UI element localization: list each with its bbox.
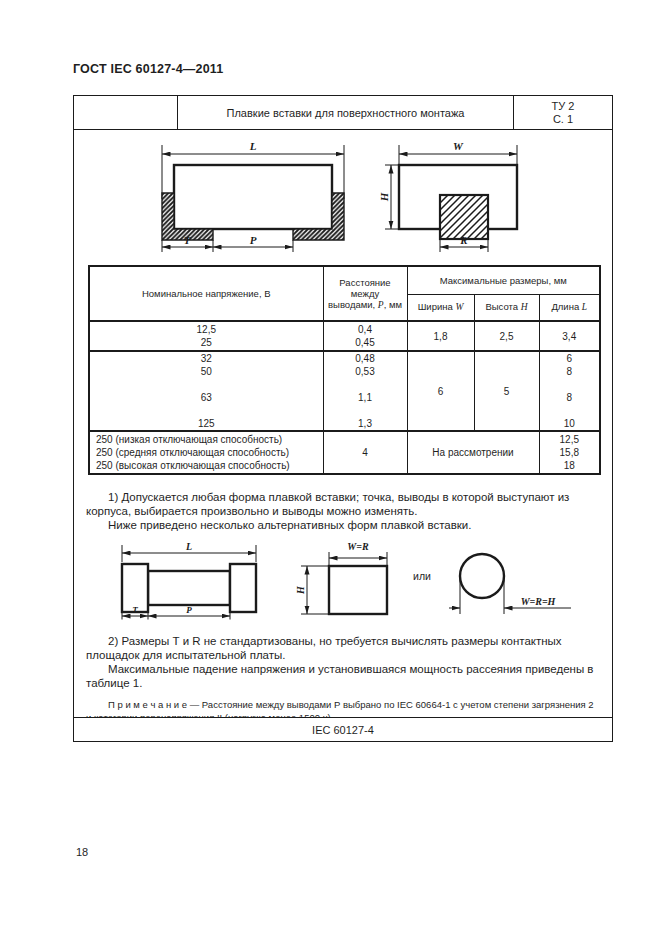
col-header-max-dims: Максимальные размеры, мм [407, 266, 600, 294]
cell-pitch: 0,48 0,53 1,1 1,3 [323, 351, 407, 431]
figure-side-view: W H R [383, 141, 533, 253]
dim-label-wrh: W=R=H [521, 596, 557, 607]
cell-height: 2,5 [474, 321, 539, 351]
fuse-body-outline [148, 571, 230, 605]
cell-pitch: 0,4 0,45 [323, 321, 407, 351]
or-label: или [413, 570, 431, 582]
end-cap-right [230, 564, 256, 612]
footnote-1-block: 1) Допускается любая форма плавкой встав… [86, 490, 600, 532]
cell-height: 5 [474, 351, 539, 431]
page-root: { "page": { "header": "ГОСТ IEC 60127-4—… [0, 0, 661, 936]
cell-voltage: 12,5 25 [89, 321, 323, 351]
page-number: 18 [76, 846, 88, 858]
cell-width: 6 [407, 351, 474, 431]
figures-row-main: L T P W H [74, 141, 612, 253]
height-symbol: H [521, 302, 528, 312]
fuse-body-outline [329, 566, 387, 614]
col-header-voltage: Номинальное напряжение, В [89, 266, 323, 321]
figure-front-view: L T P [153, 141, 353, 253]
dim-label-terminal-width: R [459, 234, 467, 246]
note-paragraph: П р и м е ч а н и е — Расстояние между в… [86, 698, 600, 717]
table-row: 32 50 63 125 0,48 0,53 1,1 1,3 [89, 351, 600, 431]
figure-alt-front: L T P [112, 542, 277, 620]
cell-length: 3,4 [539, 321, 600, 351]
page-footer: IEC 60127-4 [74, 717, 612, 741]
title-cell-empty [74, 96, 178, 129]
col-header-length: Длина L [539, 294, 600, 321]
cell-width-height-merged: На рассмотрении [407, 431, 539, 474]
dim-label-pitch: P [250, 234, 257, 246]
fuse-body-outline [174, 165, 332, 229]
cell-voltage: 32 50 63 125 [89, 351, 323, 431]
cell-length: 12,5 15,8 18 [539, 431, 600, 474]
dim-label-terminal: T [132, 605, 138, 615]
page-title: Плавкие вставки для поверхностного монта… [178, 96, 513, 129]
content-frame: Плавкие вставки для поверхностного монта… [73, 95, 613, 742]
figure-alt-side-square: W=R H [295, 542, 395, 620]
cell-pitch: 4 [323, 431, 407, 474]
dim-label-height: H [378, 192, 390, 202]
cell-length: 6 8 8 10 [539, 351, 600, 431]
table-row: 12,5 25 0,4 0,45 1,8 2,5 3,4 [89, 321, 600, 351]
length-symbol: L [582, 302, 587, 312]
col-header-height: Высота H [474, 294, 539, 321]
sheet-label: С. 1 [553, 113, 573, 126]
footnote-2-block: 2) Размеры Т и R не стандартизованы, но … [86, 634, 600, 690]
table-row: 250 (низкая отключающая способность) 250… [89, 431, 600, 474]
document-header: ГОСТ IEC 60127-4—2011 [73, 62, 223, 76]
paragraph-1b: Ниже приведено несколько альтернативных … [86, 518, 600, 532]
title-cell-ref: ТУ 2 С. 1 [513, 96, 612, 129]
dim-label-length: L [249, 140, 257, 152]
footer-doc-id: IEC 60127-4 [312, 724, 374, 736]
figure-alt-round: W=R=H [449, 546, 574, 624]
col-header-pitch: Расстояние между выводами, P, мм [323, 266, 407, 321]
col-header-width: Ширина W [407, 294, 474, 321]
dim-label-pitch: P [186, 605, 192, 615]
dim-label-wr: W=R [347, 541, 369, 552]
cell-voltage: 250 (низкая отключающая способность) 250… [89, 431, 323, 474]
width-symbol: W [455, 302, 463, 312]
spec-table: Номинальное напряжение, В Расстояние меж… [88, 265, 601, 475]
pitch-header-unit: , мм [384, 299, 402, 310]
title-row: Плавкие вставки для поверхностного монта… [74, 96, 612, 130]
dim-label-width: W [453, 140, 464, 152]
terminal-pad [440, 195, 488, 239]
figures-row-alt: L T P W=R H или [74, 542, 612, 624]
paragraph-2b: Максимальные падение напряжения и устано… [86, 662, 600, 690]
dim-label-height: H [295, 585, 306, 595]
paragraph-1: 1) Допускается любая форма плавкой встав… [86, 490, 600, 518]
dim-label-length: L [185, 541, 192, 552]
doc-type-label: ТУ 2 [552, 100, 575, 113]
cell-width: 1,8 [407, 321, 474, 351]
paragraph-2: 2) Размеры Т и R не стандартизованы, но … [86, 634, 600, 662]
fuse-body-outline [460, 554, 504, 598]
body-area: L T P W H [74, 130, 612, 717]
